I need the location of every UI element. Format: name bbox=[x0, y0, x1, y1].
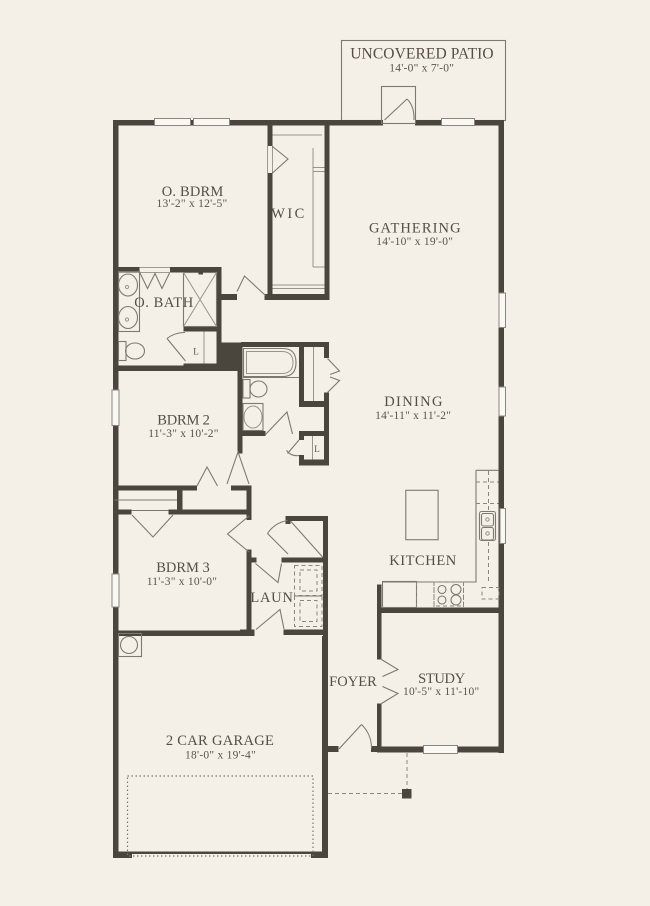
svg-text:STUDY: STUDY bbox=[418, 671, 466, 687]
svg-text:BDRM 3: BDRM 3 bbox=[156, 560, 209, 576]
svg-text:10'-5" x 11'-10": 10'-5" x 11'-10" bbox=[403, 686, 480, 698]
svg-text:18'-0" x 19'-4": 18'-0" x 19'-4" bbox=[185, 750, 256, 762]
svg-text:WIC: WIC bbox=[271, 206, 306, 222]
svg-text:11'-3" x 10'-0": 11'-3" x 10'-0" bbox=[147, 576, 218, 588]
svg-text:14'-11" x 11'-2": 14'-11" x 11'-2" bbox=[375, 410, 451, 422]
svg-text:GATHERING: GATHERING bbox=[369, 221, 462, 237]
svg-text:BDRM 2: BDRM 2 bbox=[157, 413, 210, 429]
svg-text:L: L bbox=[314, 444, 320, 454]
svg-text:LAUN: LAUN bbox=[250, 590, 293, 606]
svg-text:FOYER: FOYER bbox=[329, 674, 377, 690]
svg-text:UNCOVERED PATIO: UNCOVERED PATIO bbox=[350, 46, 493, 63]
svg-text:14'-10" x 19'-0": 14'-10" x 19'-0" bbox=[376, 236, 453, 248]
svg-text:L: L bbox=[193, 347, 199, 357]
svg-text:13'-2" x 12'-5": 13'-2" x 12'-5" bbox=[157, 198, 228, 210]
svg-text:2 CAR GARAGE: 2 CAR GARAGE bbox=[166, 733, 274, 749]
svg-text:14'-0" x 7'-0": 14'-0" x 7'-0" bbox=[389, 63, 454, 75]
svg-text:DINING: DINING bbox=[384, 394, 444, 410]
svg-text:KITCHEN: KITCHEN bbox=[389, 553, 457, 569]
svg-text:O. BATH: O. BATH bbox=[134, 295, 194, 311]
svg-text:11'-3" x 10'-2": 11'-3" x 10'-2" bbox=[148, 428, 219, 440]
